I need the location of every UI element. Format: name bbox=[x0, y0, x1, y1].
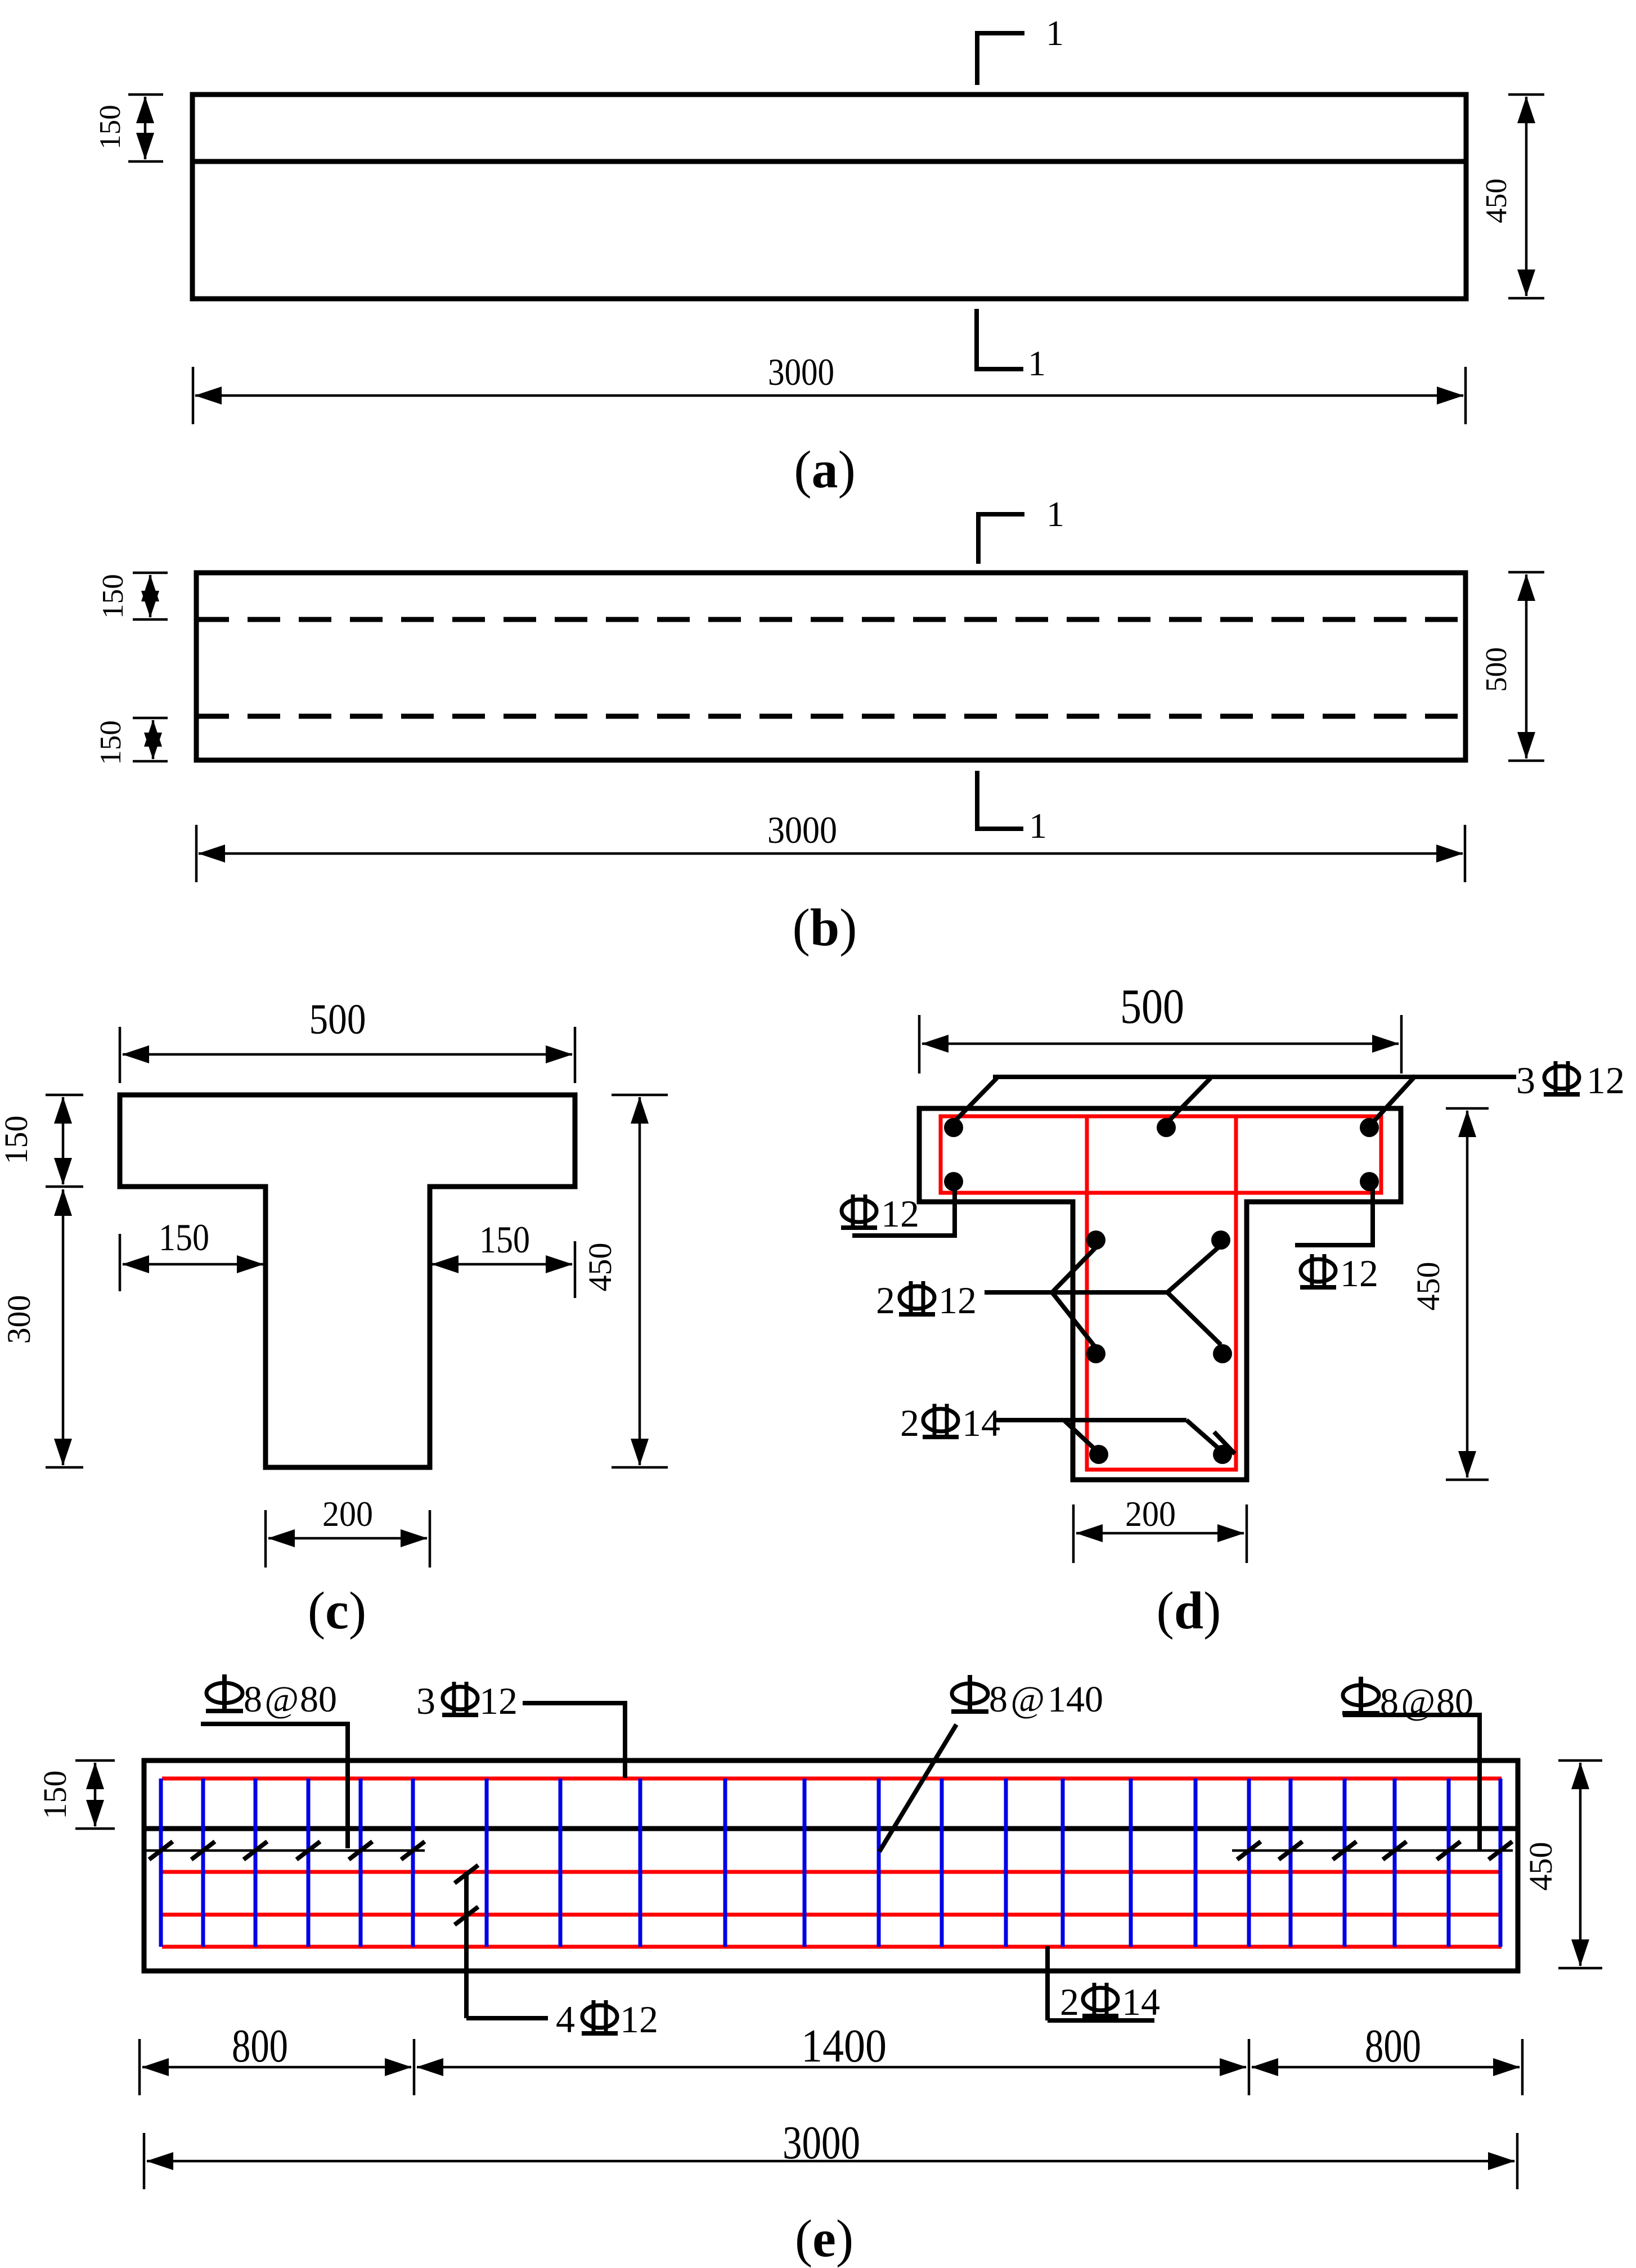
svg-text:450: 450 bbox=[1522, 1842, 1559, 1891]
svg-text:12: 12 bbox=[1586, 1059, 1625, 1102]
svg-text:@: @ bbox=[1401, 1681, 1435, 1722]
svg-text:300: 300 bbox=[1, 1295, 37, 1344]
svg-text:(c): (c) bbox=[308, 1582, 366, 1640]
svg-text:2: 2 bbox=[876, 1279, 895, 1322]
svg-text:1400: 1400 bbox=[801, 2020, 887, 2072]
svg-text:4: 4 bbox=[556, 1998, 575, 2041]
svg-text:12: 12 bbox=[881, 1192, 919, 1235]
svg-text:1: 1 bbox=[1046, 494, 1064, 534]
svg-text:140: 140 bbox=[1048, 1679, 1103, 1720]
svg-text:(b): (b) bbox=[793, 899, 857, 957]
svg-text:(e): (e) bbox=[795, 2209, 853, 2268]
svg-text:150: 150 bbox=[97, 574, 129, 619]
svg-text:150: 150 bbox=[479, 1218, 530, 1261]
svg-text:3000: 3000 bbox=[767, 809, 837, 851]
svg-text:150: 150 bbox=[95, 720, 127, 765]
svg-text:800: 800 bbox=[232, 2020, 288, 2072]
svg-text:2: 2 bbox=[900, 1402, 919, 1444]
svg-text:1: 1 bbox=[1029, 806, 1047, 846]
svg-text:(d): (d) bbox=[1157, 1582, 1221, 1640]
svg-text:450: 450 bbox=[1480, 178, 1513, 223]
svg-text:3000: 3000 bbox=[783, 2117, 860, 2169]
svg-text:500: 500 bbox=[309, 996, 366, 1043]
svg-text:500: 500 bbox=[1480, 647, 1513, 692]
svg-text:1: 1 bbox=[1028, 343, 1046, 383]
svg-text:2: 2 bbox=[1060, 1980, 1079, 2023]
svg-text:12: 12 bbox=[479, 1679, 518, 1722]
svg-text:150: 150 bbox=[94, 105, 127, 150]
svg-text:3: 3 bbox=[416, 1679, 435, 1722]
svg-text:450: 450 bbox=[582, 1243, 618, 1292]
svg-text:500: 500 bbox=[1120, 980, 1184, 1034]
svg-text:8: 8 bbox=[244, 1679, 262, 1720]
svg-text:8: 8 bbox=[989, 1679, 1008, 1720]
svg-text:80: 80 bbox=[300, 1679, 337, 1720]
svg-text:@: @ bbox=[1010, 1679, 1045, 1720]
svg-text:8: 8 bbox=[1380, 1681, 1399, 1722]
svg-text:14: 14 bbox=[1122, 1980, 1160, 2023]
svg-text:150: 150 bbox=[159, 1216, 209, 1259]
svg-text:200: 200 bbox=[1125, 1494, 1176, 1534]
svg-text:(a): (a) bbox=[794, 441, 856, 499]
svg-text:800: 800 bbox=[1365, 2020, 1421, 2072]
svg-text:12: 12 bbox=[1340, 1252, 1378, 1295]
svg-text:@: @ bbox=[264, 1679, 299, 1720]
svg-text:450: 450 bbox=[1410, 1262, 1446, 1311]
svg-text:3000: 3000 bbox=[768, 351, 834, 393]
svg-text:3: 3 bbox=[1516, 1059, 1535, 1102]
svg-text:12: 12 bbox=[938, 1279, 977, 1322]
svg-text:14: 14 bbox=[962, 1402, 1000, 1444]
svg-text:150: 150 bbox=[37, 1771, 73, 1820]
svg-text:200: 200 bbox=[322, 1494, 373, 1534]
svg-text:150: 150 bbox=[0, 1116, 34, 1165]
svg-text:12: 12 bbox=[620, 1998, 658, 2041]
svg-text:80: 80 bbox=[1436, 1681, 1473, 1722]
svg-text:1: 1 bbox=[1046, 13, 1064, 53]
